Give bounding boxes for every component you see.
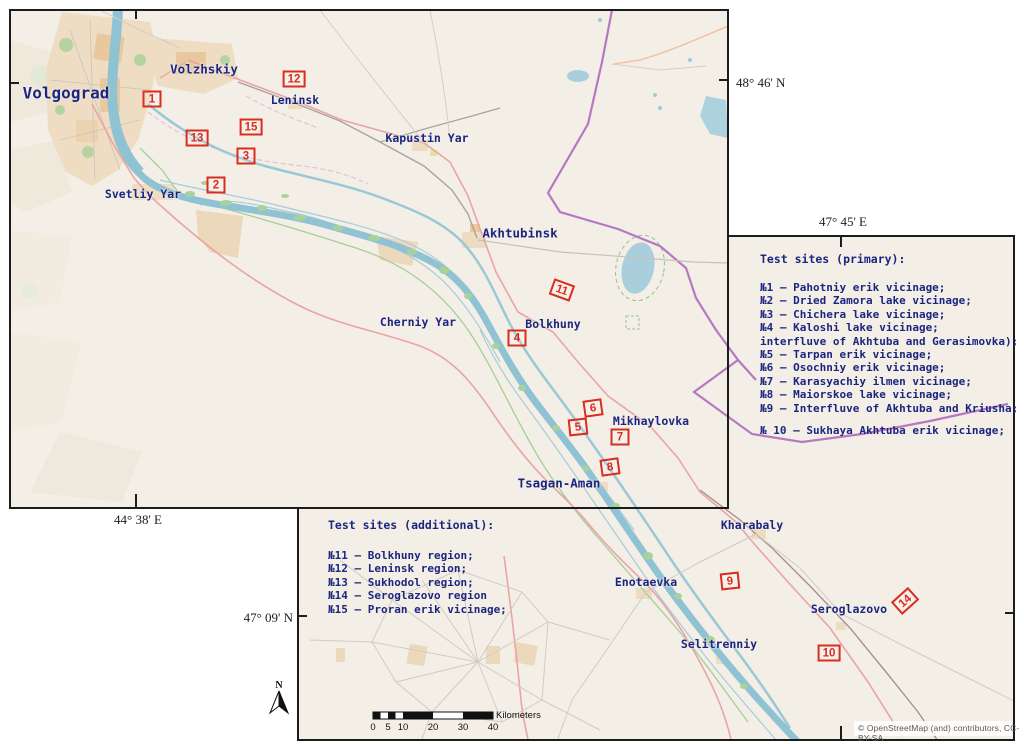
city-label-enotaevka: Enotaevka bbox=[615, 575, 677, 589]
legend-primary: Test sites (primary): №1 – Pahotniy erik… bbox=[760, 252, 1018, 437]
coordinate-label-east: 47° 45' E bbox=[819, 214, 867, 230]
scale-tick-0: 0 bbox=[370, 722, 375, 733]
legend-item: №7 – Karasyachiy ilmen vicinage; bbox=[760, 375, 1018, 388]
city-label-mikhaylovka: Mikhaylovka bbox=[613, 414, 689, 428]
city-label-akhtubinsk: Akhtubinsk bbox=[482, 226, 557, 241]
city-label-kapustin-yar: Kapustin Yar bbox=[385, 131, 468, 145]
legend-additional: Test sites (additional): №11 – Bolkhuny … bbox=[328, 518, 507, 616]
coordinate-label-south: 47° 09' N bbox=[244, 610, 293, 626]
test-site-marker-10: 10 bbox=[818, 645, 841, 662]
test-site-marker-13: 13 bbox=[186, 130, 209, 147]
north-arrow-icon bbox=[270, 691, 288, 713]
legend-item: №15 – Proran erik vicinage; bbox=[328, 603, 507, 616]
city-label-volzhskiy: Volzhskiy bbox=[170, 62, 238, 77]
test-site-marker-3: 3 bbox=[237, 148, 256, 165]
test-site-marker-9: 9 bbox=[720, 572, 741, 591]
legend-item: interfluve of Akhtuba and Gerasimovka); bbox=[760, 335, 1018, 348]
osm-attribution: © OpenStreetMap (and) contributors, CC-B… bbox=[858, 723, 1024, 743]
legend-item: №9 – Interfluve of Akhtuba and Kriusha; bbox=[760, 402, 1018, 415]
scale-tick-30: 30 bbox=[458, 722, 469, 733]
legend-item: №6 – Osochniy erik vicinage; bbox=[760, 361, 1018, 374]
legend-item: № 10 – Sukhaya Akhtuba erik vicinage; bbox=[760, 424, 1018, 437]
legend-item: №5 – Tarpan erik vicinage; bbox=[760, 348, 1018, 361]
legend-item: №3 – Chichera lake vicinage; bbox=[760, 308, 1018, 321]
city-label-cherniy-yar: Cherniy Yar bbox=[380, 315, 456, 329]
scale-tick-40: 40 bbox=[488, 722, 499, 733]
test-site-marker-12: 12 bbox=[283, 71, 306, 88]
test-site-marker-5: 5 bbox=[568, 418, 589, 437]
test-site-marker-7: 7 bbox=[611, 429, 630, 446]
city-label-volgograd: Volgograd bbox=[23, 84, 110, 103]
legend-item: №14 – Seroglazovo region bbox=[328, 589, 507, 602]
scale-tick-10: 10 bbox=[398, 722, 409, 733]
test-site-marker-15: 15 bbox=[240, 119, 263, 136]
map-figure: Volgograd Volzhskiy Leninsk Kapustin Yar… bbox=[0, 0, 1024, 744]
scale-unit-label: Kilometers bbox=[496, 710, 541, 721]
city-label-svetliy-yar: Svetliy Yar bbox=[105, 187, 181, 201]
legend-item: №1 – Pahotniy erik vicinage; bbox=[760, 281, 1018, 294]
city-label-tsagan-aman: Tsagan-Aman bbox=[518, 476, 601, 491]
test-site-marker-4: 4 bbox=[508, 330, 527, 347]
legend-item: №4 – Kaloshi lake vicinage; bbox=[760, 321, 1018, 334]
city-label-selitrenniy: Selitrenniy bbox=[681, 637, 757, 651]
test-site-marker-6: 6 bbox=[582, 398, 603, 417]
city-label-leninsk: Leninsk bbox=[271, 93, 319, 107]
test-site-marker-1: 1 bbox=[143, 91, 162, 108]
legend-item: №2 – Dried Zamora lake vicinage; bbox=[760, 294, 1018, 307]
city-label-seroglazovo: Seroglazovo bbox=[811, 602, 887, 616]
coordinate-label-north: 48° 46' N bbox=[736, 75, 785, 91]
test-site-marker-2: 2 bbox=[207, 177, 226, 194]
scale-tick-20: 20 bbox=[428, 722, 439, 733]
north-arrow-label: N bbox=[275, 680, 282, 691]
legend-item: №8 – Maiorskoe lake vicinage; bbox=[760, 388, 1018, 401]
coordinate-label-west: 44° 38' E bbox=[114, 512, 162, 528]
scale-bar bbox=[373, 712, 493, 719]
city-label-kharabaly: Kharabaly bbox=[721, 518, 783, 532]
legend-additional-title: Test sites (additional): bbox=[328, 518, 507, 532]
city-label-bolkhuny: Bolkhuny bbox=[525, 317, 580, 331]
test-site-marker-8: 8 bbox=[599, 457, 620, 476]
scale-tick-5: 5 bbox=[385, 722, 390, 733]
legend-item: №13 – Sukhodol region; bbox=[328, 576, 507, 589]
legend-item: №12 – Leninsk region; bbox=[328, 562, 507, 575]
legend-item: №11 – Bolkhuny region; bbox=[328, 549, 507, 562]
legend-primary-title: Test sites (primary): bbox=[760, 252, 1018, 266]
